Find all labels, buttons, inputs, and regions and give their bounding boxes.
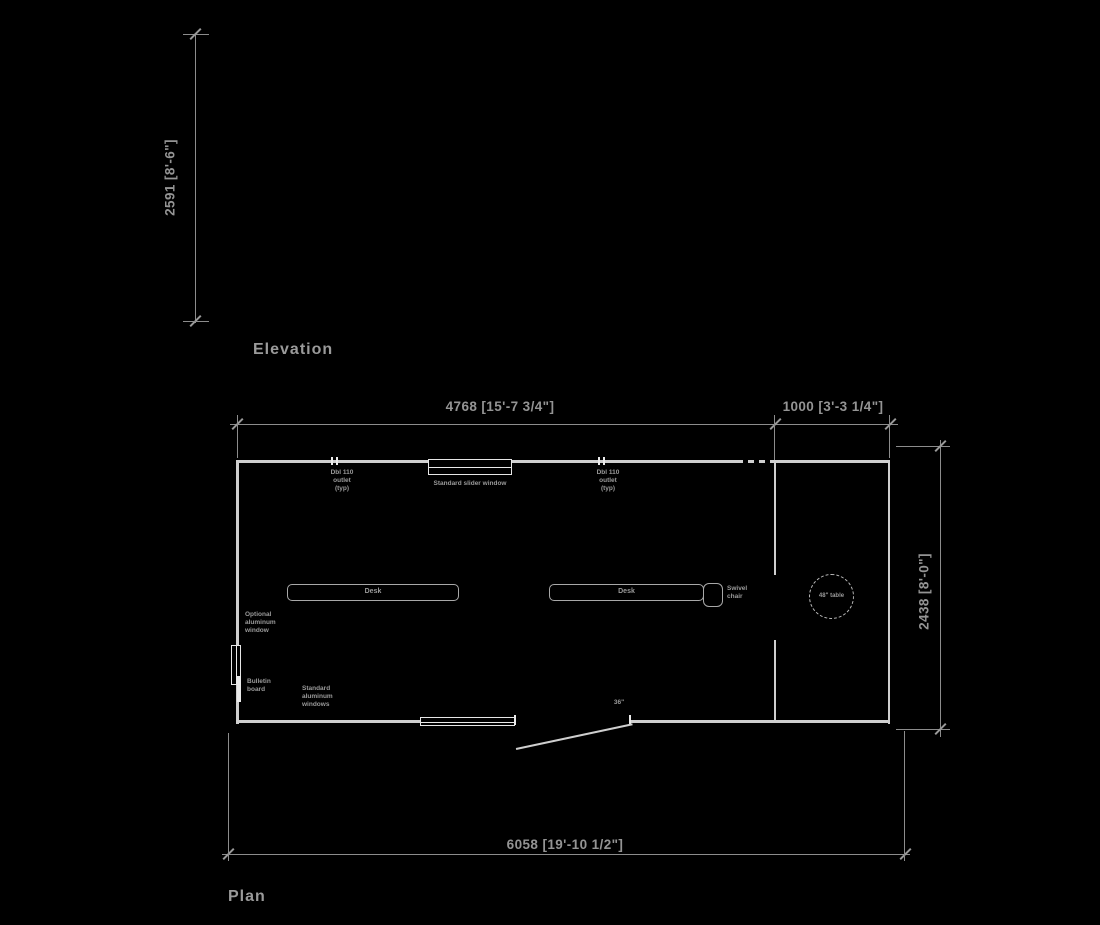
elevation-height-dimension: 2591 [8'-6"] <box>163 103 178 253</box>
plan-top-ext-line-left <box>237 415 238 458</box>
top-wall-segment-2 <box>512 460 737 463</box>
desk-1-label: Desk <box>288 588 458 596</box>
outlet-symbol-2-tick-a <box>598 457 600 465</box>
door-jamb-left <box>514 715 516 725</box>
plan-bottom-ext-line-left <box>228 733 229 861</box>
elevation-view-title: Elevation <box>253 341 333 359</box>
round-table: 48" table <box>809 574 854 619</box>
plan-top-dim-line <box>230 424 898 425</box>
elevation-dim-end-stub-bottom <box>183 321 209 322</box>
bottom-wall-segment-1 <box>237 720 420 723</box>
plan-view-title: Plan <box>228 888 266 906</box>
bottom-window-midline <box>421 722 514 723</box>
desk-2-label: Desk <box>550 588 703 596</box>
left-window-label-line1: Optional <box>245 611 276 619</box>
plan-top-ext-line-right <box>889 415 890 458</box>
outlet-label-1: Dbl 110 outlet (typ) <box>317 469 367 493</box>
plan-bottom-ext-line-right <box>904 731 905 861</box>
elevation-dim-line <box>195 34 196 323</box>
cad-drawing-canvas: 2591 [8'-6"] Elevation 4768 [15'-7 3/4"]… <box>0 0 1100 925</box>
door-size-label: 36" <box>604 699 634 707</box>
outlet-label-1-line1: Dbl 110 <box>317 469 367 477</box>
top-wall-segment-1 <box>237 460 428 463</box>
bulletin-board-symbol <box>237 676 241 702</box>
bottom-wall-segment-2 <box>630 720 890 723</box>
plan-right-ext-line-bottom <box>896 729 950 730</box>
plan-right-dimension: 2438 [8'-0"] <box>917 517 932 667</box>
top-window-label: Standard slider window <box>400 480 540 488</box>
chair-label-line1: Swivel <box>727 585 747 593</box>
partition-wall-upper <box>774 462 776 575</box>
outlet-label-2-line2: outlet <box>583 477 633 485</box>
outlet-label-2-line1: Dbl 110 <box>583 469 633 477</box>
plan-top-left-dimension: 4768 [15'-7 3/4"] <box>390 399 610 414</box>
outlet-symbol-2-tick-b <box>603 457 605 465</box>
plan-bottom-dimension: 6058 [19'-10 1/2"] <box>435 837 695 852</box>
plan-right-dim-line <box>940 440 941 737</box>
plan-top-right-dimension: 1000 [3'-3 1/4"] <box>748 399 918 414</box>
chair-label: Swivel chair <box>727 585 747 601</box>
outlet-symbol-1-tick-a <box>331 457 333 465</box>
outlet-label-1-line3: (typ) <box>317 485 367 493</box>
desk-1: Desk <box>287 584 459 601</box>
top-window-midline <box>429 467 511 468</box>
bottom-window-label-line1: Standard <box>302 685 333 693</box>
round-table-label: 48" table <box>810 592 853 600</box>
plan-top-ext-line-mid <box>774 415 775 460</box>
bottom-window-label-line2: aluminum <box>302 693 333 701</box>
top-window-symbol <box>428 459 512 475</box>
outlet-label-2-line3: (typ) <box>583 485 633 493</box>
bottom-window-label: Standard aluminum windows <box>302 685 333 709</box>
bottom-window-label-line3: windows <box>302 701 333 709</box>
outlet-label-1-line2: outlet <box>317 477 367 485</box>
bulletin-board-label-line1: Bulletin <box>247 678 271 686</box>
top-wall-segment-3 <box>775 460 890 463</box>
desk-2: Desk <box>549 584 704 601</box>
chair <box>703 583 723 607</box>
left-wall-segment-1 <box>236 460 239 645</box>
bulletin-board-label-line2: board <box>247 686 271 694</box>
left-window-label-line3: window <box>245 627 276 635</box>
left-window-label: Optional aluminum window <box>245 611 276 635</box>
outlet-symbol-1-tick-b <box>336 457 338 465</box>
left-window-label-line2: aluminum <box>245 619 276 627</box>
outlet-label-2: Dbl 110 outlet (typ) <box>583 469 633 493</box>
top-wall-dashed-opening <box>737 460 775 463</box>
bottom-window-symbol <box>420 717 515 726</box>
chair-label-line2: chair <box>727 593 747 601</box>
bulletin-board-label: Bulletin board <box>247 678 271 694</box>
plan-bottom-dim-line <box>222 854 910 855</box>
partition-wall-lower <box>774 640 776 722</box>
door-leaf-line <box>516 723 633 749</box>
plan-right-ext-line-top <box>896 446 950 447</box>
right-wall <box>888 460 891 724</box>
